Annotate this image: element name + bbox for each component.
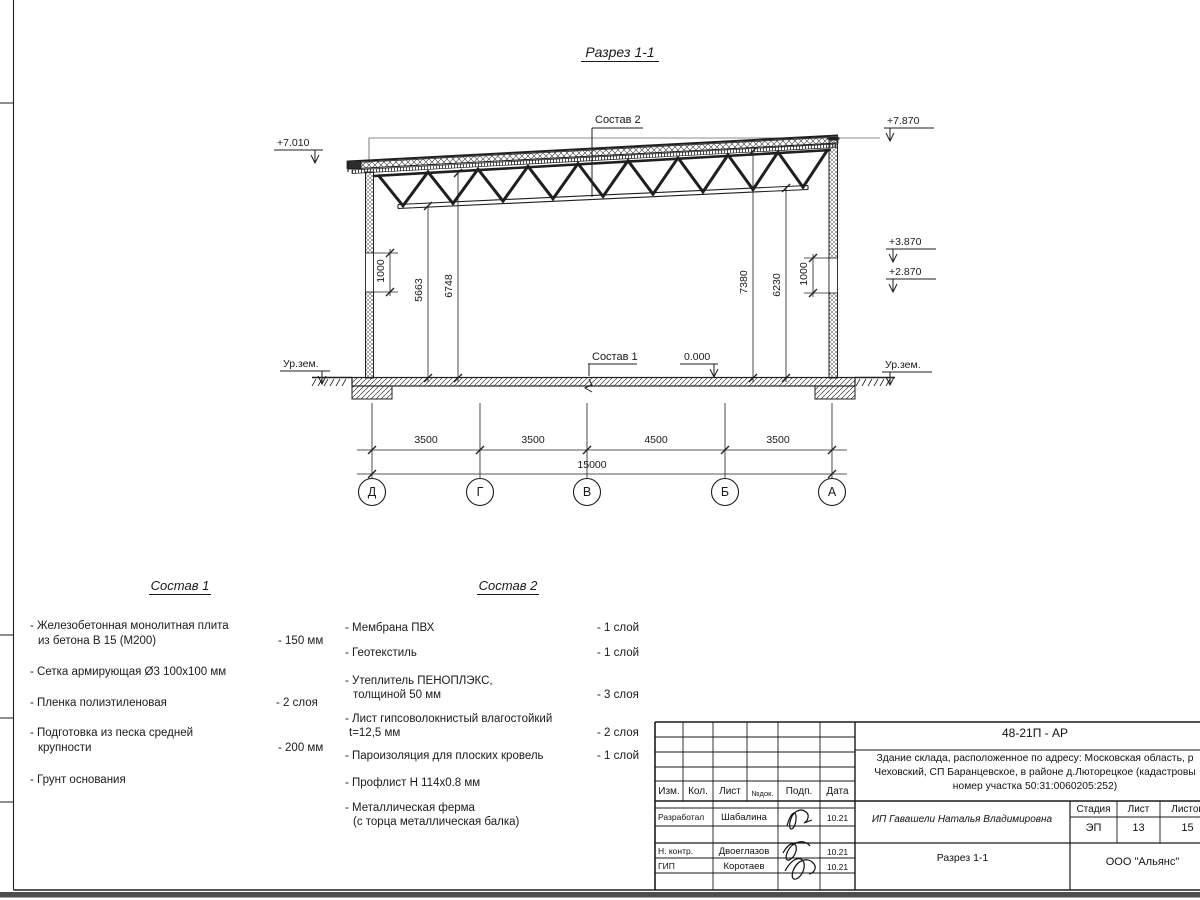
sostav2-reference: Состав 2 — [595, 114, 641, 127]
row-name: Шабалина — [713, 812, 775, 823]
axis-label-d: Д — [359, 485, 385, 499]
project-address-line3: номер участка 50:31:0060205:252) — [857, 781, 1200, 792]
elevation-right-2: +2.870 — [889, 266, 921, 279]
col-header-data: Дата — [820, 786, 855, 797]
list-item-value: - 200 мм — [278, 742, 323, 755]
col-header-izm: Изм. — [655, 786, 683, 797]
list-item-value: - 1 слой — [597, 622, 639, 635]
axis-circles — [359, 479, 846, 506]
section-drawing — [0, 0, 1200, 900]
page-title: Разрез 1-1 — [540, 46, 700, 62]
sheets-total: 15 — [1160, 822, 1200, 834]
row-date: 10.21 — [820, 847, 855, 857]
dim-6230: 6230 — [771, 263, 783, 307]
list-item: - Геотекстиль — [345, 647, 417, 660]
client-name: ИП Гавашели Наталья Владимировна — [856, 814, 1068, 825]
right-footing — [815, 386, 855, 399]
axis-label-a: А — [819, 485, 845, 499]
sostav2-title: Состав 2 — [466, 579, 550, 595]
row-name: Двоеглазов — [713, 846, 775, 857]
left-wall-panel-joint — [366, 253, 374, 292]
dim-span-1: 3500 — [404, 434, 448, 447]
col-header-podp: Подп. — [778, 786, 820, 797]
list-item-value: - 2 слоя — [276, 697, 318, 710]
list-item-value: - 150 мм — [278, 635, 323, 648]
col-header-kol: Кол. — [683, 786, 713, 797]
row-role: Разработал — [658, 812, 704, 822]
list-item: (с торца металлическая балка) — [353, 816, 519, 829]
left-wall — [366, 172, 374, 378]
row-role: Н. контр. — [658, 846, 693, 856]
document-code: 48-21П - АР — [855, 726, 1200, 740]
project-address-line1: Здание склада, расположенное по адресу: … — [857, 753, 1200, 764]
left-footing — [352, 386, 392, 399]
stage-value: ЭП — [1070, 822, 1117, 834]
list-item: крупности — [38, 742, 91, 755]
elevation-right-1: +3.870 — [889, 236, 921, 249]
list-item: t=12,5 мм — [349, 727, 400, 740]
row-date: 10.21 — [820, 813, 855, 823]
elevation-left-top: +7.010 — [277, 137, 309, 150]
list-item-value: - 2 слоя — [597, 727, 639, 740]
dimension-lines — [357, 147, 847, 506]
zero-level-mark: 0.000 — [684, 351, 710, 364]
drawing-name: Разрез 1-1 — [855, 852, 1070, 864]
page-edge-strip — [0, 892, 1200, 898]
sostav1-reference: Состав 1 — [592, 351, 638, 364]
list-item: - Железобетонная монолитная плита — [30, 620, 229, 633]
list-item: - Металлическая ферма — [345, 802, 475, 815]
axis-label-v: В — [574, 485, 600, 499]
dim-span-2: 3500 — [511, 434, 555, 447]
col-header-ndok: №док. — [747, 789, 778, 798]
axis-label-b: Б — [712, 485, 738, 499]
stage-label: Стадия — [1070, 804, 1117, 815]
list-item-value: - 1 слой — [597, 647, 639, 660]
axis-label-g: Г — [467, 485, 493, 499]
sheets-label: Листов — [1160, 804, 1200, 815]
roof-edge-cap — [347, 161, 361, 169]
row-role: ГИП — [658, 861, 675, 871]
dim-span-4: 3500 — [756, 434, 800, 447]
list-item: из бетона В 15 (М200) — [38, 635, 156, 648]
col-header-list: Лист — [713, 786, 747, 797]
signatures — [783, 810, 815, 879]
list-item: толщиной 50 мм — [353, 689, 441, 702]
row-date: 10.21 — [820, 862, 855, 872]
list-item: - Пленка полиэтиленовая — [30, 697, 167, 710]
ground-level-right: Ур.зем. — [885, 359, 921, 372]
signature — [783, 842, 815, 879]
dim-total: 15000 — [570, 459, 614, 472]
company-name: ООО "Альянс" — [1070, 856, 1200, 868]
list-item-value: - 1 слой — [597, 750, 639, 763]
dim-5663: 5663 — [413, 268, 425, 312]
list-item: - Сетка армирующая Ø3 100х100 мм — [30, 666, 226, 679]
list-item: - Пароизоляция для плоских кровель — [345, 750, 544, 763]
floor-slab — [352, 378, 855, 400]
elevation-right-top: +7.870 — [887, 115, 919, 128]
list-item: - Утеплитель ПЕНОПЛЭКС, — [345, 675, 493, 688]
sheet-label: Лист — [1117, 804, 1160, 815]
sheet-number: 13 — [1117, 822, 1160, 834]
list-item: - Лист гипсоволокнистый влагостойкий — [345, 713, 552, 726]
drawing-sheet: { "title": "Разрез 1-1", "drawing": { "s… — [0, 0, 1200, 900]
dim-span-3: 4500 — [634, 434, 678, 447]
list-item-value: - 3 слоя — [597, 689, 639, 702]
sostav1-title: Состав 1 — [138, 579, 222, 595]
dim-7380: 7380 — [738, 260, 750, 304]
dim-1000-right: 1000 — [798, 252, 810, 296]
ground-level-left: Ур.зем. — [283, 358, 319, 371]
right-wall-panel-joint — [829, 258, 838, 293]
row-name: Коротаев — [713, 861, 775, 872]
project-address-line2: Чеховский, СП Баранцевское, в районе д.Л… — [857, 767, 1200, 778]
dim-1000-left: 1000 — [375, 249, 387, 293]
list-item: - Мембрана ПВХ — [345, 622, 434, 635]
list-item: - Грунт основания — [30, 774, 126, 787]
list-item: - Подготовка из песка средней — [30, 727, 193, 740]
dim-6748: 6748 — [443, 264, 455, 308]
list-item: - Профлист Н 114х0.8 мм — [345, 777, 480, 790]
